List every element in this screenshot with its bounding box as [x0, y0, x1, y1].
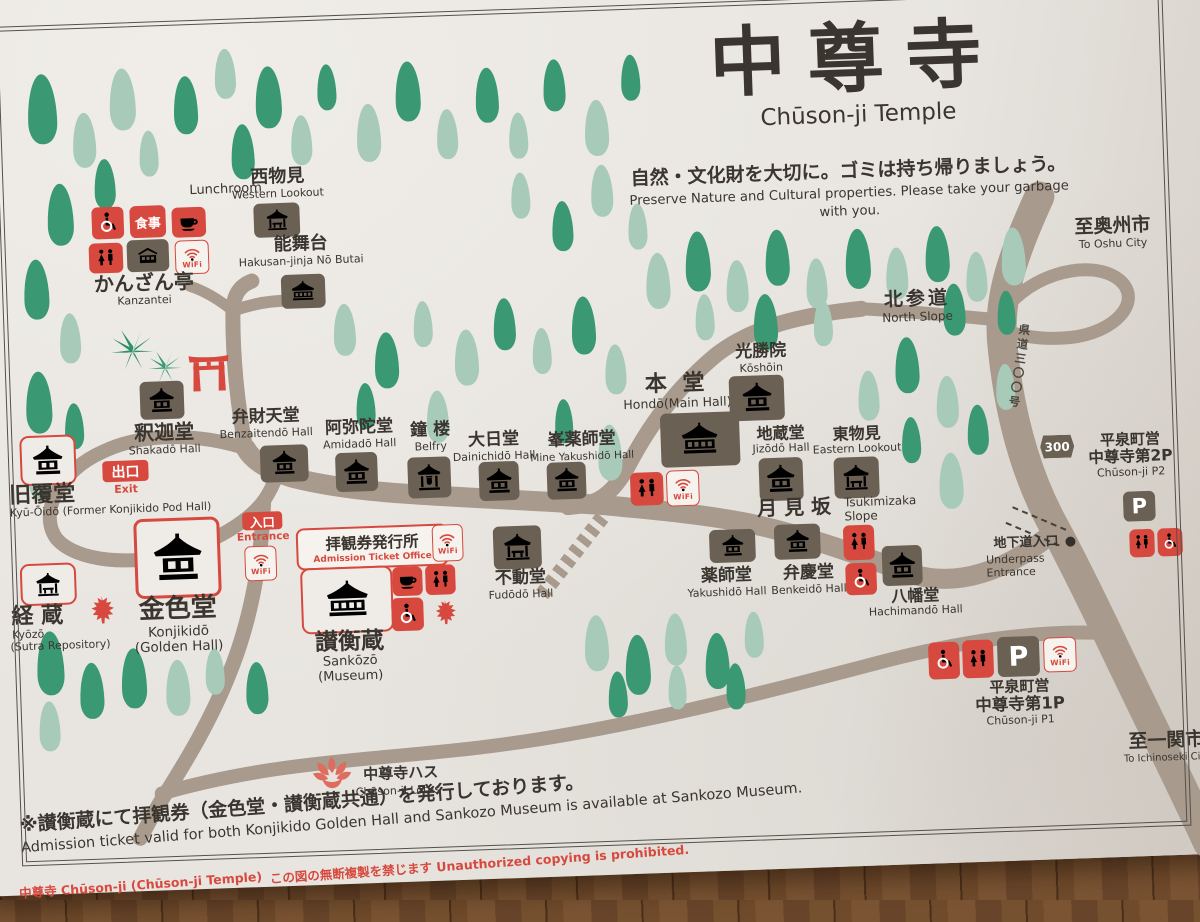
loc-konjikido: 金色堂 Konjikidō (Golden Hall) — [125, 593, 232, 658]
restroom-icon — [843, 524, 875, 560]
loc-to-oshu: 至奥州市 To Oshu City — [1060, 214, 1165, 252]
entrance-sign-en: Entrance — [237, 530, 289, 544]
wifi-icon: WiFi — [1043, 637, 1077, 673]
hondo-icon — [660, 411, 741, 468]
hachimando-icon — [882, 545, 923, 586]
entrance-sign: 入口 — [242, 511, 283, 530]
loc-mineyakushido: 峯薬師堂 Mine Yakushidō Hall — [529, 429, 634, 464]
restroom-icon — [1129, 529, 1155, 558]
wifi-icon: WiFi — [666, 470, 700, 507]
koshoin-icon — [729, 375, 786, 422]
benkeido-icon — [774, 523, 821, 560]
kyozo-icon — [20, 562, 77, 606]
restroom-icon — [88, 243, 123, 274]
parking-icon: P — [997, 636, 1040, 677]
map-content: 中尊寺 Chūson-ji Temple 自然・文化財を大切に。ゴミは持ち帰りま… — [0, 0, 1200, 921]
loc-benkeido: 弁慶堂 Benkeidō Hall — [766, 562, 851, 597]
exit-sign: 出口 — [102, 460, 149, 483]
meal-icon: 食事 — [129, 205, 166, 238]
benzaitendo-icon — [260, 444, 309, 483]
kyuoido-icon — [19, 434, 77, 486]
torii-gate-icon — [184, 343, 234, 403]
wifi-icon: WiFi — [432, 524, 464, 562]
loc-koshoin: 光勝院 Kōshōin — [724, 341, 797, 376]
ticket-office-sign: 拝観券発行所 Admission Ticket Office — [296, 523, 449, 570]
loc-fudodo: 不動堂 Fudōdō Hall — [482, 568, 559, 603]
loc-p1: 平泉町営 中尊寺第1P Chūson-ji P1 — [958, 676, 1082, 729]
loc-shakado: 釈迦堂 Shakadō Hall — [109, 419, 220, 458]
loc-nobutai: 能舞台 Hakusan-jinja Nō Butai — [230, 232, 371, 270]
eastern-lookout-icon — [833, 456, 879, 499]
belfry-icon — [407, 456, 451, 498]
restroom-icon — [425, 564, 456, 595]
dainichido-icon — [478, 461, 519, 501]
paper-map: 中尊寺 Chūson-ji Temple 自然・文化財を大切に。ゴミは持ち帰りま… — [0, 0, 1200, 897]
loc-p2: 平泉町営 中尊寺第2P Chūson-ji P2 — [1082, 430, 1180, 481]
mineyakushido-icon — [546, 462, 586, 500]
loc-kyozo: 経 蔵 Kyōzō — [11, 601, 112, 642]
page-title: 中尊寺 — [708, 9, 1005, 108]
wifi-icon: WiFi — [244, 545, 277, 581]
loc-yakushido: 薬師堂 Yakushidō Hall — [684, 565, 769, 600]
wheelchair-icon — [928, 642, 960, 680]
loc-underpass: 地下道入口 — [993, 534, 1075, 552]
konjikido-icon — [133, 516, 222, 599]
loc-amidado: 阿弥陀堂 Amidadō Hall — [317, 417, 402, 452]
nobutai-icon — [281, 274, 326, 310]
maple-leaf-icon — [428, 594, 461, 633]
loc-sankozo: 讃衡蔵 Sankōzō (Museum) — [294, 627, 406, 687]
shakado-icon — [139, 380, 184, 420]
route-300-badge: 300 — [1040, 434, 1075, 458]
loc-underpass-en: Underpass Entrance — [986, 551, 1087, 580]
loc-kanzantei: かんざん亭 Kanzantei — [84, 270, 205, 310]
yakushido-icon — [709, 529, 756, 564]
wheelchair-icon — [1157, 528, 1183, 557]
cafe-icon — [392, 566, 423, 596]
restroom-icon — [962, 639, 994, 678]
fudodo-icon — [493, 525, 542, 570]
parking-icon: P — [1123, 491, 1156, 522]
map-header: 中尊寺 Chūson-ji Temple — [675, 9, 1039, 135]
loc-eastern-lookout: 東物見 Eastern Lookout — [807, 423, 906, 457]
loc-tsukimizaka-en: Tsukimizaka Slope — [844, 494, 917, 524]
amidado-icon — [335, 452, 378, 492]
loc-hachimando: 八幡堂 Hachimandō Hall — [867, 585, 964, 619]
wheelchair-icon — [91, 206, 124, 239]
kanzantei-building-icon — [126, 239, 169, 272]
loc-hondo: 本 堂 Hondō(Main Hall) — [617, 369, 736, 413]
loc-benzaitendo: 弁財天堂 Benzaitendō Hall — [210, 406, 321, 442]
cafe-icon — [171, 207, 206, 238]
loc-western-lookout: 西物見 Western Lookout — [222, 165, 333, 202]
loc-to-ichinoseki: 至一関市 To Ichinoseki City — [1118, 729, 1200, 766]
sankozo-icon — [300, 565, 394, 634]
loc-dainichido: 大日堂 Dainichidō Hall — [451, 429, 536, 464]
restroom-icon — [630, 472, 664, 506]
loc-north-slope: 北参道 North Slope — [865, 287, 970, 326]
loc-tsukimizaka: 月 見 坂 — [757, 494, 853, 520]
exit-sign-en: Exit — [103, 483, 149, 497]
